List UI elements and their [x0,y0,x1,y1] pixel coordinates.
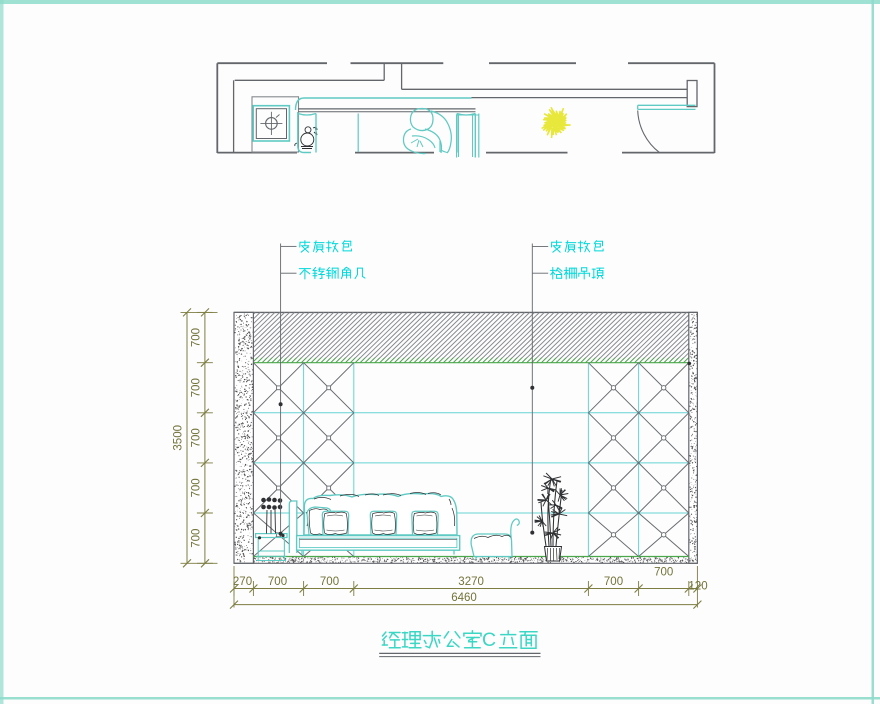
svg-text:700: 700 [320,576,339,588]
svg-text:700: 700 [190,529,202,548]
svg-text:700: 700 [190,328,202,347]
svg-text:700: 700 [191,428,203,447]
svg-text:700: 700 [268,576,287,588]
svg-text:3270: 3270 [458,576,484,588]
svg-text:700: 700 [191,378,203,397]
svg-text:700: 700 [604,576,623,588]
svg-text:700: 700 [654,567,673,579]
svg-text:C: C [482,629,496,651]
svg-text:3500: 3500 [173,425,185,451]
svg-text:270: 270 [233,576,252,588]
svg-text:120: 120 [688,581,707,593]
svg-text:700: 700 [190,478,202,497]
svg-text:6460: 6460 [451,592,477,604]
